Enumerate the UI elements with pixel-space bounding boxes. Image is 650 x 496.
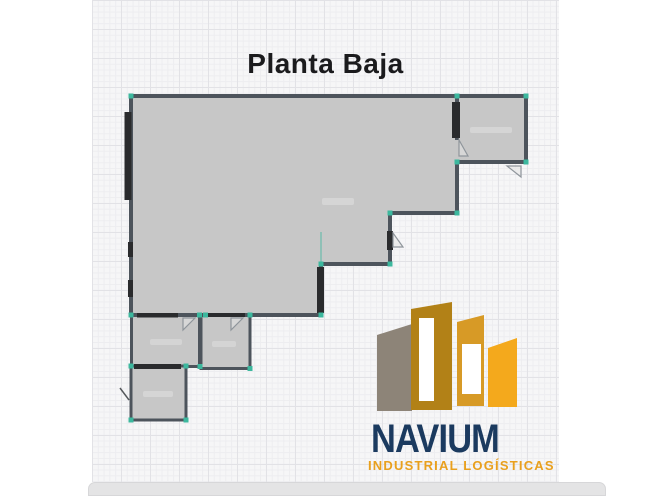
door-swing-line — [120, 388, 129, 400]
corner-handle[interactable] — [197, 313, 202, 318]
door-swing — [393, 233, 403, 247]
floor-main[interactable] — [131, 96, 526, 315]
corner-handle[interactable] — [129, 313, 134, 318]
dark-wall-segment — [317, 267, 324, 313]
dark-wall-segment — [134, 364, 181, 369]
corner-handle[interactable] — [129, 418, 134, 423]
corner-handle[interactable] — [184, 364, 189, 369]
corner-handle[interactable] — [455, 160, 460, 165]
corner-handle[interactable] — [129, 364, 134, 369]
dark-wall-segment — [387, 231, 393, 250]
corner-handle[interactable] — [203, 313, 208, 318]
corner-handle[interactable] — [319, 262, 324, 267]
logo-tagline: INDUSTRIAL LOGÍSTICAS — [368, 459, 555, 472]
logo-building-window — [462, 344, 481, 394]
corner-handle[interactable] — [388, 262, 393, 267]
floorplan-canvas — [0, 0, 650, 488]
room-label-smudge — [470, 127, 512, 133]
dark-wall-segment — [128, 242, 133, 257]
room-label-smudge — [322, 198, 354, 205]
dark-wall-segment — [137, 313, 178, 318]
corner-handle[interactable] — [524, 94, 529, 99]
corner-handle[interactable] — [198, 364, 203, 369]
room-label-smudge — [212, 341, 236, 347]
corner-handle[interactable] — [248, 366, 253, 371]
corner-handle[interactable] — [388, 211, 393, 216]
dark-wall-segment — [452, 102, 460, 138]
corner-handle[interactable] — [455, 94, 460, 99]
corner-handle[interactable] — [129, 94, 134, 99]
room-label-smudge — [143, 391, 173, 397]
dark-wall-segment — [207, 313, 245, 317]
logo-building-yellow-icon — [488, 338, 517, 407]
door-swing — [507, 166, 521, 177]
logo-building-window — [419, 318, 434, 401]
corner-handle[interactable] — [248, 313, 253, 318]
logo-buildings — [377, 302, 517, 411]
corner-handle[interactable] — [455, 211, 460, 216]
logo-wordmark: NAVIUM — [371, 419, 499, 459]
corner-handle[interactable] — [524, 160, 529, 165]
dark-wall-segment — [125, 112, 132, 200]
bottom-panel-edge — [88, 482, 606, 496]
dark-wall-segment — [128, 280, 133, 297]
corner-handle[interactable] — [184, 418, 189, 423]
corner-handle[interactable] — [319, 313, 324, 318]
room-label-smudge — [150, 339, 182, 345]
logo-building-gray-icon — [377, 324, 412, 411]
